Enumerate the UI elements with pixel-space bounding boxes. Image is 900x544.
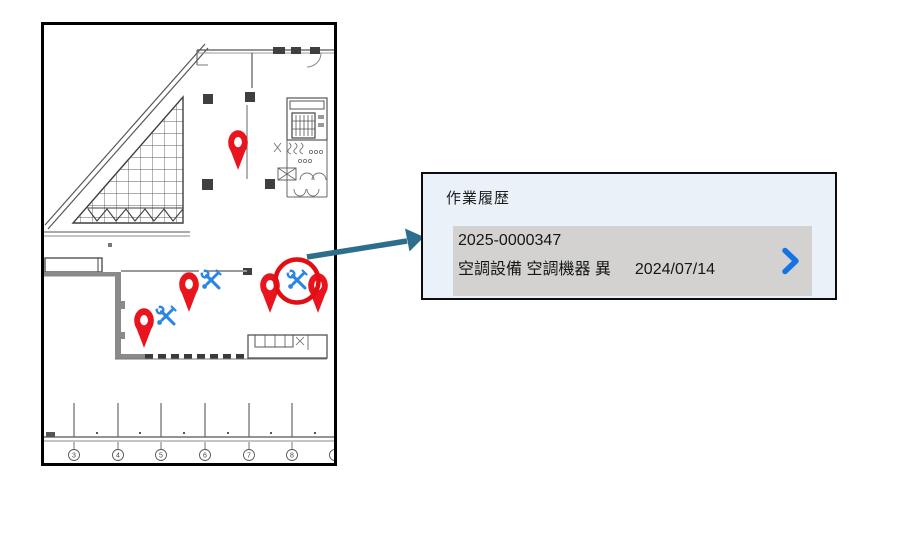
- tools-icon-2[interactable]: [154, 304, 176, 325]
- work-order-date: 2024/07/14: [635, 261, 715, 279]
- callout-arrow-icon: [307, 229, 424, 258]
- chevron-right-icon: [781, 248, 800, 275]
- map-pin-1[interactable]: [228, 130, 248, 170]
- work-order-category: 空調設備 空調機器 異: [458, 261, 611, 279]
- screen: 3 4 5 6 7 8: [0, 0, 900, 544]
- work-history-item-text: 2025-0000347 空調設備 空調機器 異 2024/07/14: [458, 230, 778, 279]
- tools-icon-3[interactable]: [285, 268, 307, 289]
- map-pin-3[interactable]: [134, 308, 154, 348]
- work-history-item[interactable]: 2025-0000347 空調設備 空調機器 異 2024/07/14: [453, 226, 812, 296]
- popup-title: 作業履歴: [446, 187, 510, 208]
- map-pin-2[interactable]: [179, 272, 199, 312]
- work-order-id: 2025-0000347: [458, 232, 778, 250]
- tools-icon-1[interactable]: [199, 268, 221, 289]
- work-history-popup: 作業履歴 2025-0000347 空調設備 空調機器 異 2024/07/14: [421, 172, 837, 300]
